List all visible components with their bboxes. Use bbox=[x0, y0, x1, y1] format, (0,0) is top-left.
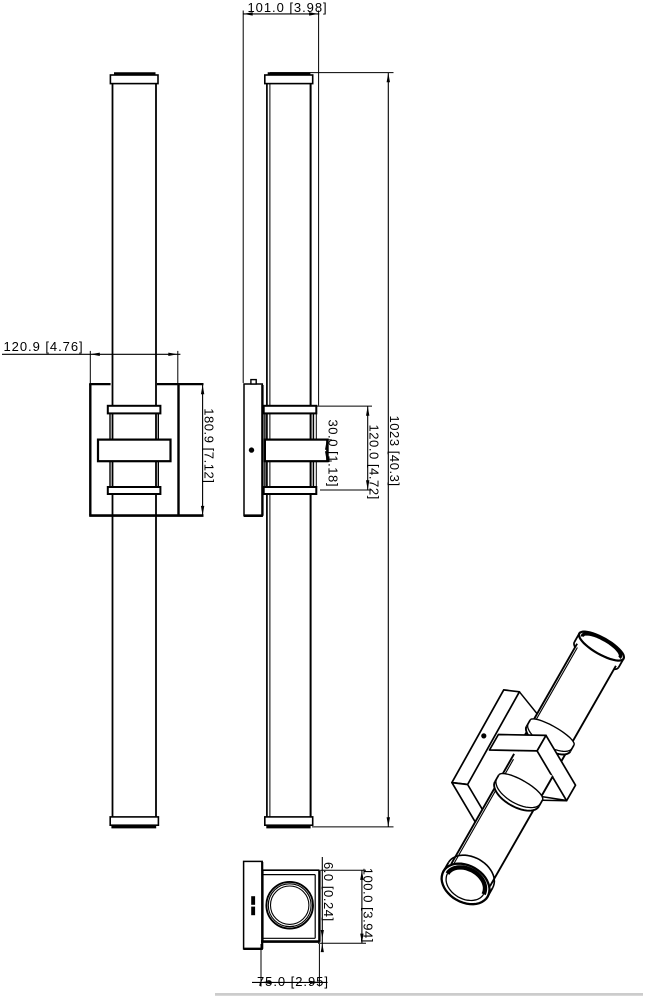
svg-text:101.0 [3.98]: 101.0 [3.98] bbox=[248, 0, 328, 15]
svg-text:75.0 [2.95]: 75.0 [2.95] bbox=[257, 974, 329, 989]
svg-text:100.0 [3.94]: 100.0 [3.94] bbox=[360, 868, 375, 943]
svg-text:1023 [40.3]: 1023 [40.3] bbox=[387, 416, 402, 487]
svg-text:6.0 [0.24]: 6.0 [0.24] bbox=[321, 862, 336, 922]
svg-text:120.0 [4.72]: 120.0 [4.72] bbox=[367, 425, 382, 500]
svg-text:120.9 [4.76]: 120.9 [4.76] bbox=[4, 339, 84, 354]
svg-text:180.9 [7.12]: 180.9 [7.12] bbox=[202, 408, 217, 483]
svg-text:30.0 [1.18]: 30.0 [1.18] bbox=[326, 420, 341, 488]
